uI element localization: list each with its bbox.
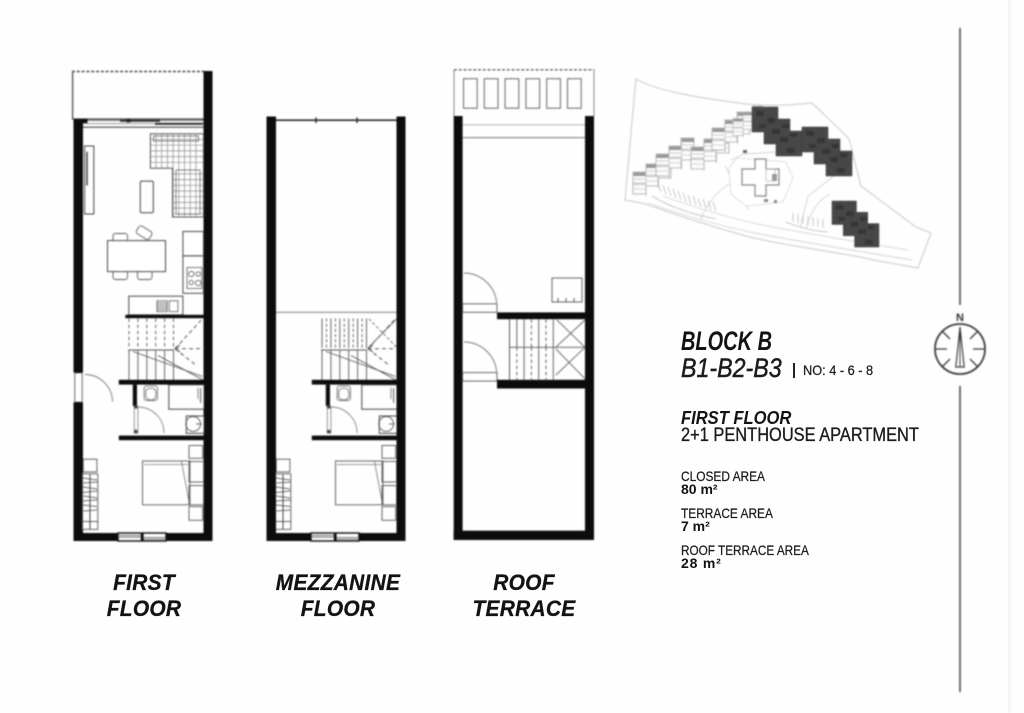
svg-text:N: N (956, 312, 964, 324)
